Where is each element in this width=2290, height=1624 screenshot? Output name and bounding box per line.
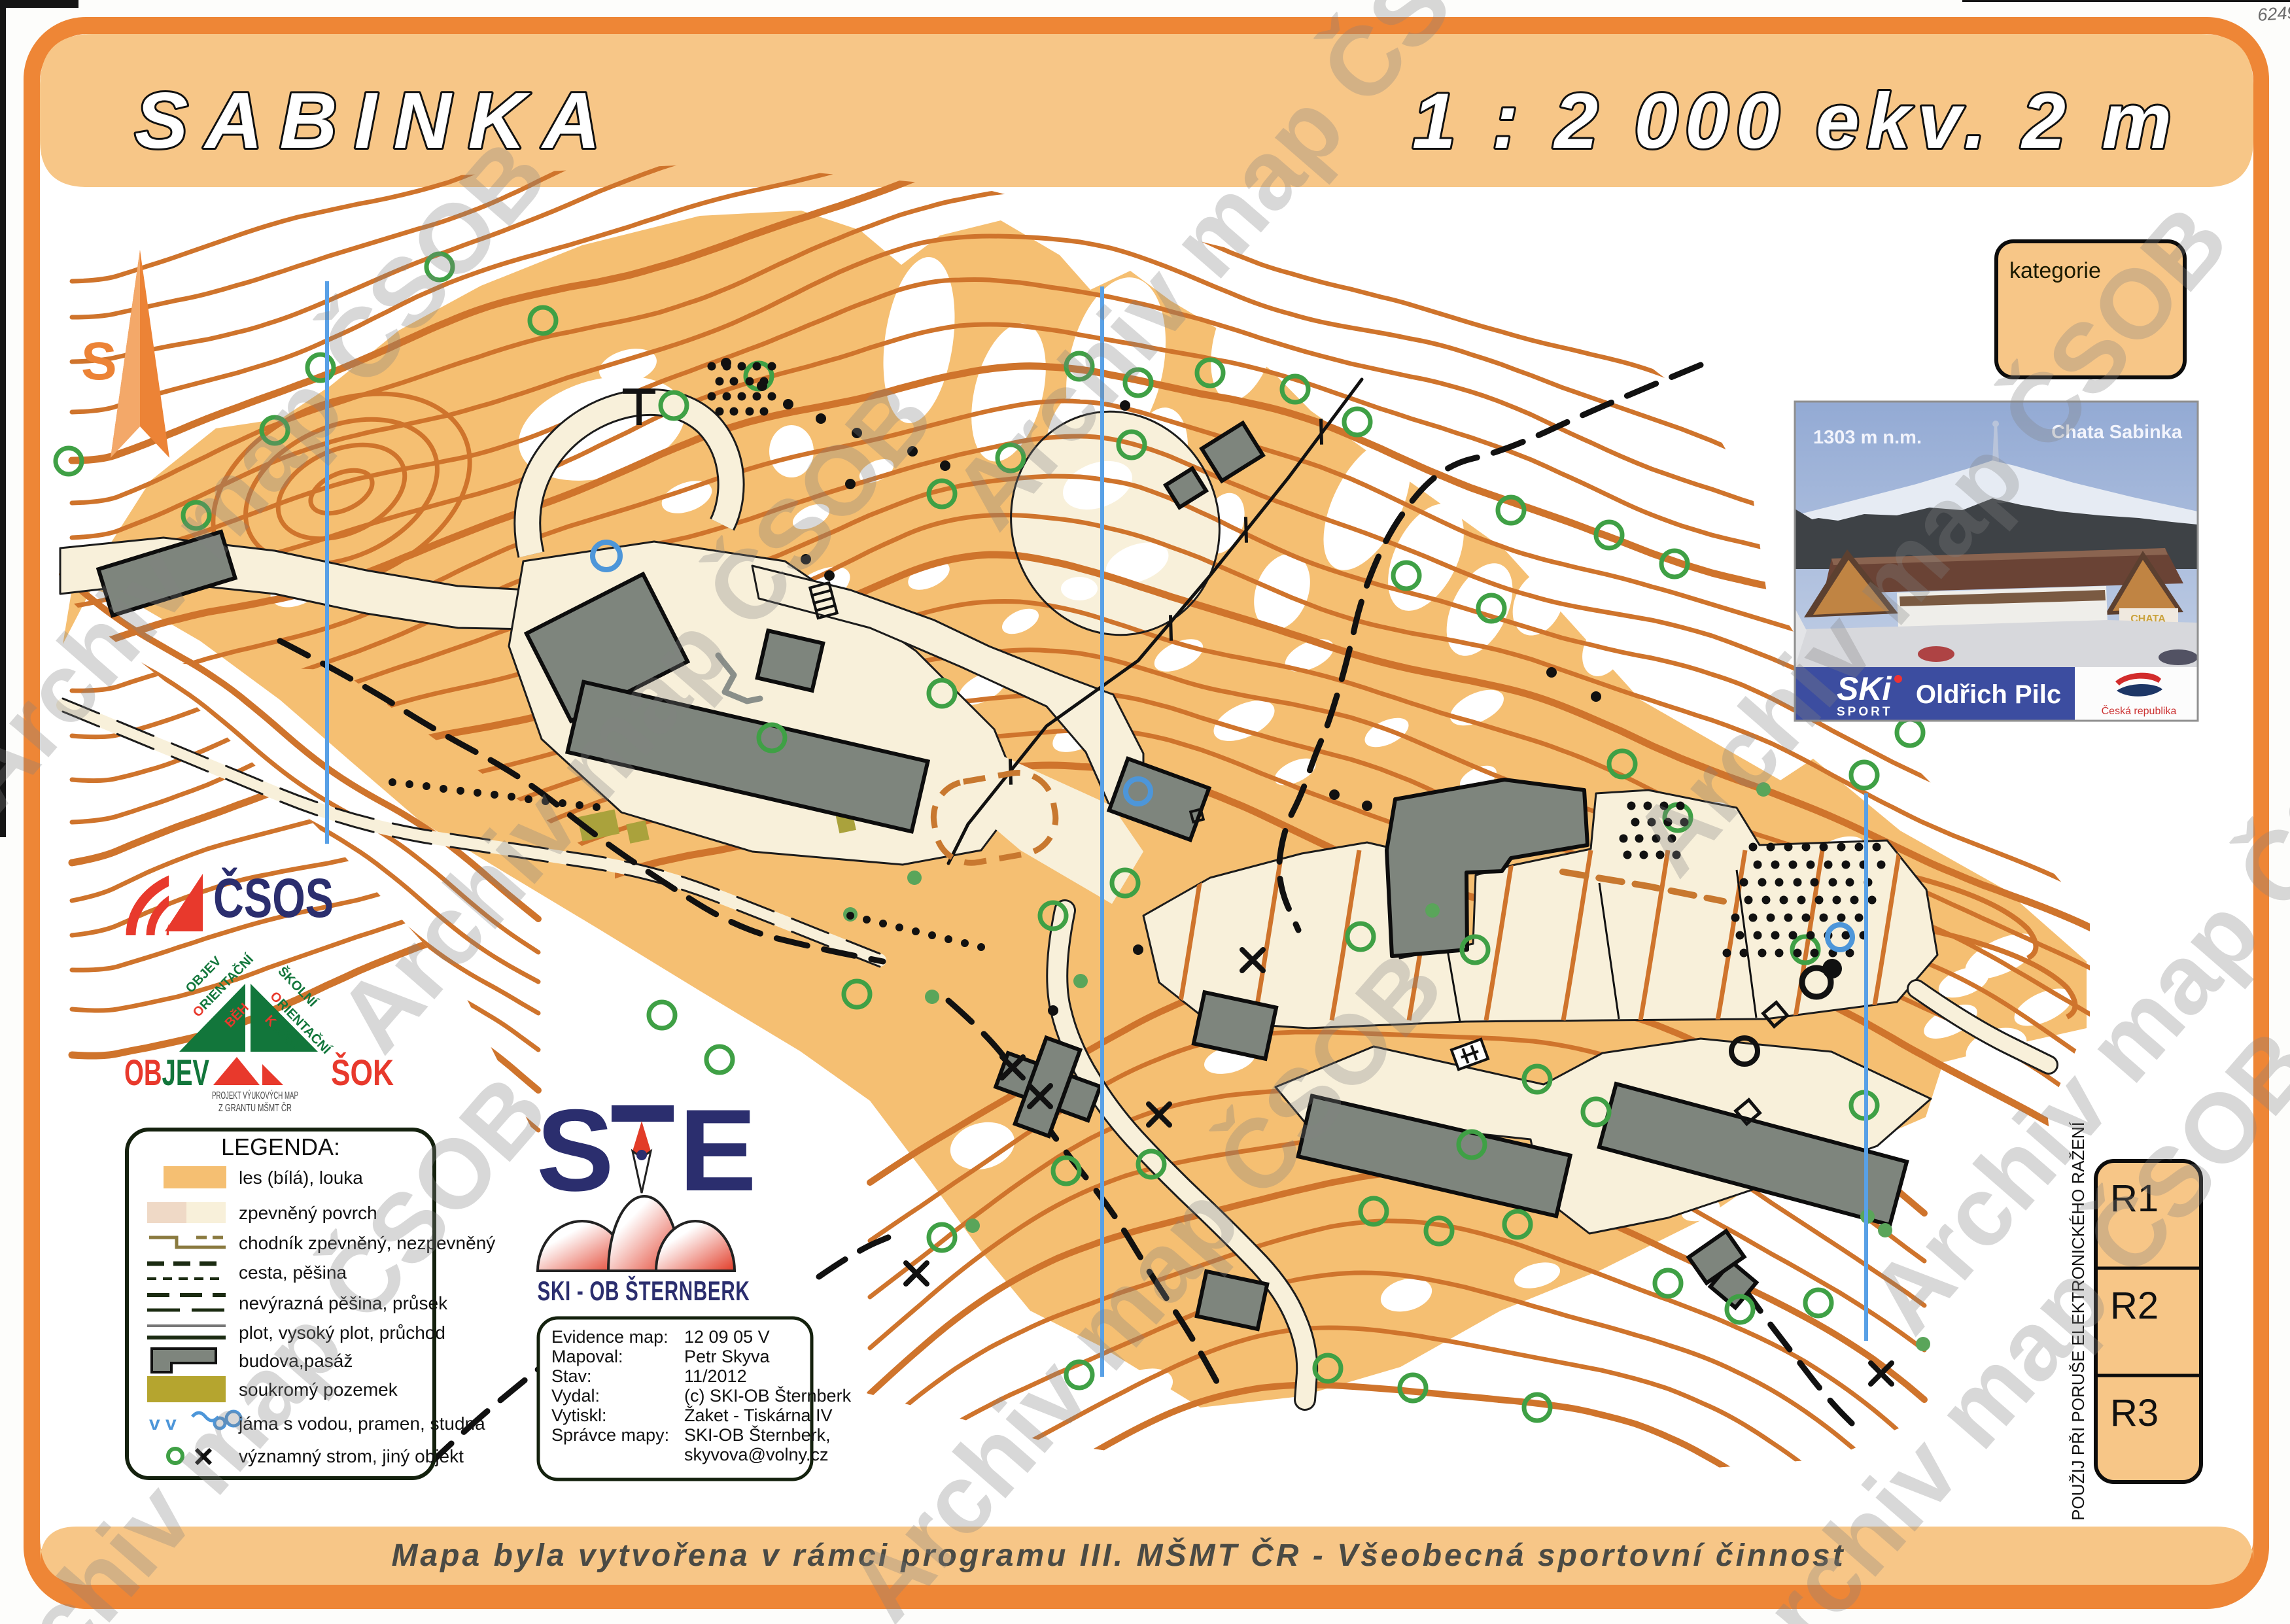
- svg-text:6249: 6249: [2257, 3, 2290, 25]
- svg-text:S: S: [536, 1085, 614, 1215]
- svg-text:LEGENDA:: LEGENDA:: [221, 1133, 340, 1160]
- svg-text:Žaket - Tiskárna IV: Žaket - Tiskárna IV: [684, 1405, 833, 1425]
- svg-text:Petr Skyva: Petr Skyva: [684, 1347, 771, 1366]
- svg-text:Evidence map:: Evidence map:: [551, 1327, 668, 1347]
- svg-text:Mapa byla vytvořena v rámci pr: Mapa byla vytvořena v rámci programu III…: [391, 1537, 1845, 1573]
- svg-text:11/2012: 11/2012: [684, 1366, 747, 1386]
- svg-text:12 09 05 V: 12 09 05 V: [684, 1327, 770, 1347]
- svg-text:SABINKA: SABINKA: [135, 76, 617, 165]
- svg-text:Stav:: Stav:: [551, 1366, 592, 1386]
- svg-text:R3: R3: [2110, 1392, 2159, 1434]
- svg-text:Mapoval:: Mapoval:: [551, 1347, 623, 1366]
- svg-text:ČSOS: ČSOS: [213, 867, 334, 929]
- svg-text:skyvova@volny.cz: skyvova@volny.cz: [684, 1445, 828, 1464]
- svg-text:les (bílá), louka: les (bílá), louka: [239, 1167, 363, 1188]
- svg-text:E: E: [679, 1085, 757, 1215]
- svg-text:SKI-OB Šternberk,: SKI-OB Šternberk,: [684, 1425, 831, 1445]
- svg-text:SKI - OB ŠTERNBERK: SKI - OB ŠTERNBERK: [538, 1275, 750, 1306]
- svg-text:OBJEV: OBJEV: [124, 1052, 209, 1093]
- svg-text:Česká republika: Česká republika: [2102, 704, 2177, 717]
- svg-text:Vytiskl:: Vytiskl:: [551, 1406, 607, 1425]
- svg-text:Oldřich Pilc: Oldřich Pilc: [1916, 680, 2061, 709]
- svg-text:(c) SKI-OB Šternberk: (c) SKI-OB Šternberk: [684, 1385, 852, 1406]
- svg-text:S: S: [81, 332, 117, 391]
- svg-text:Z GRANTU MŠMT ČR: Z GRANTU MŠMT ČR: [218, 1101, 292, 1114]
- svg-text:PROJEKT VÝUKOVÝCH MAP: PROJEKT VÝUKOVÝCH MAP: [212, 1089, 298, 1101]
- svg-text:Vydal:: Vydal:: [551, 1386, 600, 1406]
- svg-text:1303 m n.m.: 1303 m n.m.: [1813, 427, 1922, 448]
- svg-text:Správce mapy:: Správce mapy:: [551, 1425, 669, 1445]
- svg-text:1 : 2 000 ekv. 2 m: 1 : 2 000 ekv. 2 m: [1412, 77, 2179, 165]
